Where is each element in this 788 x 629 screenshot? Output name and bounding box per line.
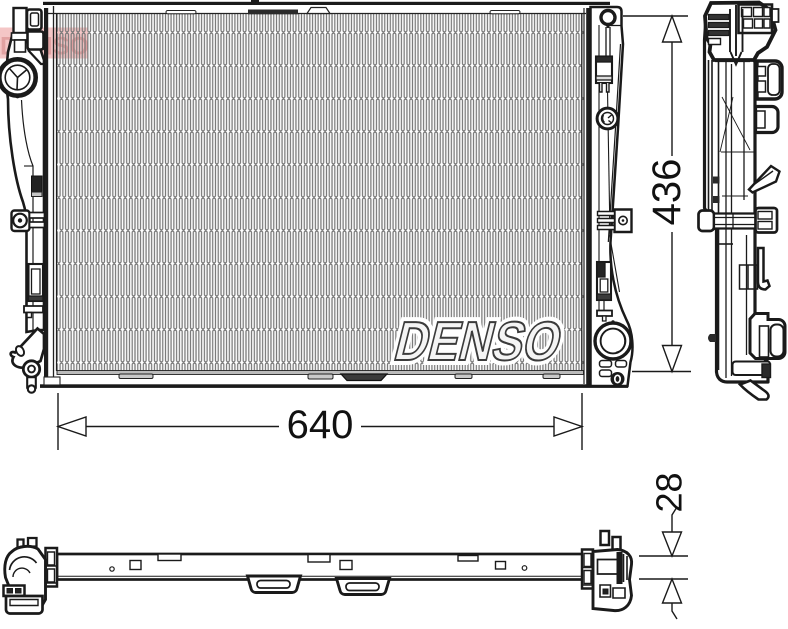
svg-text:28: 28: [649, 472, 690, 512]
svg-text:640: 640: [287, 403, 354, 447]
svg-text:DENSO: DENSO: [389, 310, 569, 372]
svg-text:436: 436: [645, 159, 689, 226]
